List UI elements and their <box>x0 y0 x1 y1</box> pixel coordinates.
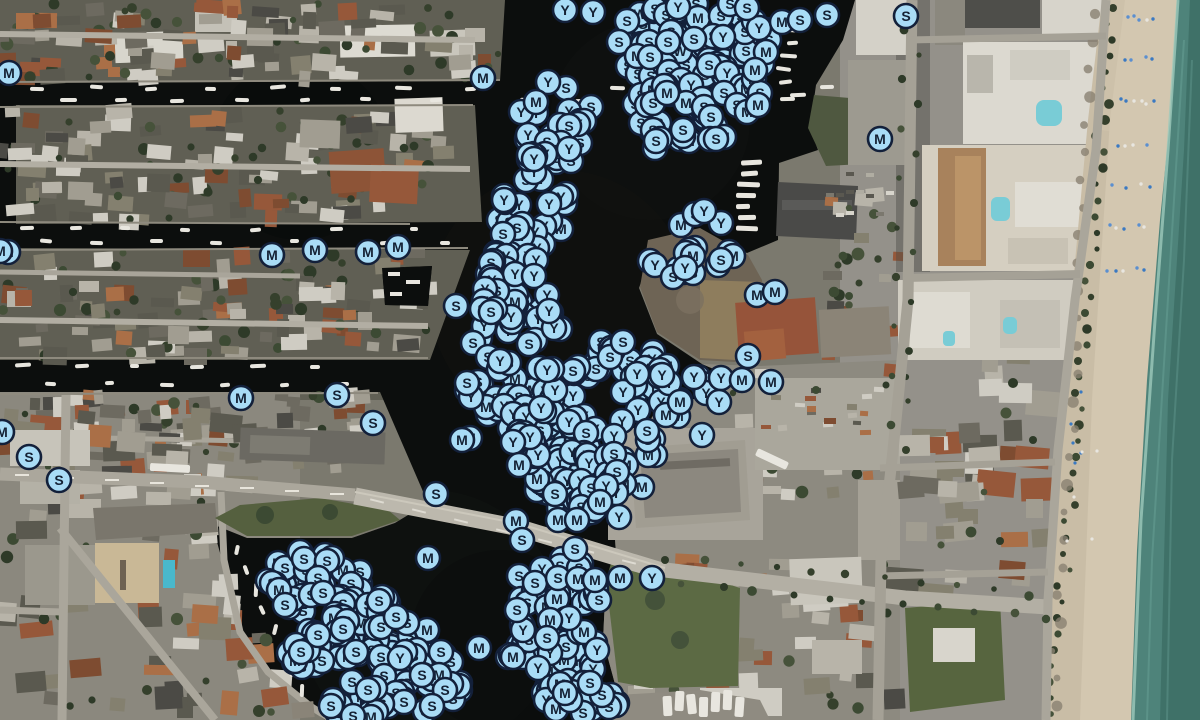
svg-text:M: M <box>571 512 583 528</box>
svg-text:S: S <box>901 8 910 24</box>
svg-text:Y: Y <box>523 127 533 143</box>
svg-text:S: S <box>417 667 426 683</box>
svg-text:M: M <box>776 14 788 30</box>
svg-text:S: S <box>363 682 372 698</box>
svg-text:Y: Y <box>564 414 574 430</box>
svg-text:M: M <box>235 390 247 406</box>
svg-text:Y: Y <box>536 400 546 416</box>
svg-text:Y: Y <box>525 429 535 445</box>
svg-text:M: M <box>365 709 377 720</box>
svg-text:S: S <box>822 7 831 23</box>
svg-text:S: S <box>742 0 751 16</box>
svg-text:S: S <box>743 348 752 364</box>
svg-text:S: S <box>614 34 623 50</box>
svg-text:S: S <box>678 122 687 138</box>
svg-text:S: S <box>542 630 551 646</box>
svg-text:Y: Y <box>714 394 724 410</box>
svg-text:M: M <box>530 94 542 110</box>
svg-text:M: M <box>765 374 777 390</box>
svg-text:M: M <box>752 97 764 113</box>
svg-text:Y: Y <box>722 65 732 81</box>
svg-text:S: S <box>431 486 440 502</box>
svg-text:Y: Y <box>544 196 554 212</box>
svg-text:M: M <box>477 70 489 86</box>
svg-text:S: S <box>427 698 436 714</box>
svg-text:S: S <box>24 449 33 465</box>
svg-text:M: M <box>661 85 673 101</box>
svg-text:M: M <box>589 572 601 588</box>
svg-text:Y: Y <box>754 20 764 36</box>
svg-text:S: S <box>332 387 341 403</box>
svg-text:M: M <box>473 640 485 656</box>
svg-text:S: S <box>451 298 460 314</box>
svg-text:Y: Y <box>697 427 707 443</box>
svg-text:Y: Y <box>588 4 598 20</box>
svg-text:Y: Y <box>542 362 552 378</box>
svg-text:Y: Y <box>673 0 683 15</box>
svg-text:S: S <box>570 541 579 557</box>
svg-text:S: S <box>524 336 533 352</box>
svg-text:S: S <box>351 644 360 660</box>
svg-text:M: M <box>551 591 563 607</box>
svg-text:Y: Y <box>689 369 699 385</box>
svg-text:Y: Y <box>564 141 574 157</box>
svg-text:Y: Y <box>564 610 574 626</box>
svg-text:Y: Y <box>395 650 405 666</box>
svg-text:M: M <box>0 424 8 440</box>
svg-text:M: M <box>636 479 648 495</box>
svg-text:M: M <box>3 65 15 81</box>
svg-text:S: S <box>530 575 539 591</box>
svg-text:M: M <box>507 649 519 665</box>
svg-text:Y: Y <box>533 660 543 676</box>
svg-text:M: M <box>422 550 434 566</box>
svg-text:S: S <box>561 80 570 96</box>
svg-text:Y: Y <box>614 509 624 525</box>
svg-text:S: S <box>605 349 614 365</box>
svg-text:Y: Y <box>632 366 642 382</box>
svg-text:M: M <box>392 239 404 255</box>
svg-text:S: S <box>338 621 347 637</box>
svg-text:S: S <box>663 34 672 50</box>
svg-text:M: M <box>874 131 886 147</box>
svg-text:S: S <box>725 0 734 12</box>
svg-text:S: S <box>645 49 654 65</box>
svg-text:M: M <box>456 432 468 448</box>
svg-text:Y: Y <box>592 642 602 658</box>
svg-text:S: S <box>622 13 631 29</box>
svg-text:Y: Y <box>560 2 570 18</box>
svg-text:S: S <box>716 252 725 268</box>
svg-text:S: S <box>512 602 521 618</box>
svg-text:S: S <box>618 334 627 350</box>
svg-text:M: M <box>0 243 6 259</box>
svg-text:S: S <box>795 12 804 28</box>
svg-text:S: S <box>54 472 63 488</box>
svg-text:M: M <box>421 622 433 638</box>
svg-text:S: S <box>689 31 698 47</box>
svg-text:M: M <box>309 242 321 258</box>
svg-text:M: M <box>736 372 748 388</box>
svg-text:S: S <box>436 644 445 660</box>
svg-text:Y: Y <box>543 74 553 90</box>
svg-text:S: S <box>299 551 308 567</box>
svg-text:Y: Y <box>499 192 509 208</box>
svg-text:Y: Y <box>647 570 657 586</box>
svg-text:Y: Y <box>544 303 554 319</box>
svg-text:Y: Y <box>529 151 539 167</box>
svg-text:M: M <box>362 244 374 260</box>
svg-text:M: M <box>769 284 781 300</box>
svg-text:S: S <box>440 682 449 698</box>
svg-text:S: S <box>376 649 385 665</box>
svg-text:Y: Y <box>633 402 643 418</box>
svg-text:Y: Y <box>533 447 543 463</box>
svg-text:S: S <box>486 304 495 320</box>
svg-text:Y: Y <box>699 203 709 219</box>
svg-text:Y: Y <box>518 622 528 638</box>
svg-text:Y: Y <box>529 268 539 284</box>
svg-text:M: M <box>594 494 606 510</box>
svg-text:S: S <box>462 375 471 391</box>
svg-text:M: M <box>674 394 686 410</box>
svg-text:Y: Y <box>716 215 726 231</box>
svg-text:M: M <box>266 247 278 263</box>
svg-text:S: S <box>704 57 713 73</box>
svg-text:S: S <box>594 592 603 608</box>
svg-text:M: M <box>751 287 763 303</box>
svg-text:S: S <box>399 694 408 710</box>
svg-text:M: M <box>552 512 564 528</box>
svg-text:S: S <box>348 708 357 720</box>
svg-text:M: M <box>692 10 704 26</box>
svg-text:Y: Y <box>680 260 690 276</box>
svg-text:S: S <box>368 415 377 431</box>
svg-text:S: S <box>568 363 577 379</box>
svg-text:Y: Y <box>718 29 728 45</box>
svg-text:S: S <box>651 133 660 149</box>
svg-text:M: M <box>559 685 571 701</box>
svg-text:Y: Y <box>657 367 667 383</box>
svg-text:M: M <box>760 44 772 60</box>
svg-text:S: S <box>318 585 327 601</box>
svg-text:M: M <box>510 513 522 529</box>
svg-text:S: S <box>468 335 477 351</box>
svg-text:S: S <box>741 43 750 59</box>
svg-text:S: S <box>313 627 322 643</box>
svg-text:S: S <box>374 593 383 609</box>
svg-text:S: S <box>391 609 400 625</box>
svg-text:S: S <box>585 675 594 691</box>
svg-text:Y: Y <box>510 266 520 282</box>
svg-text:S: S <box>326 698 335 714</box>
svg-text:Y: Y <box>584 455 594 471</box>
svg-text:S: S <box>706 109 715 125</box>
svg-text:S: S <box>296 644 305 660</box>
svg-text:M: M <box>614 570 626 586</box>
svg-text:M: M <box>513 457 525 473</box>
svg-text:Y: Y <box>650 257 660 273</box>
svg-text:Y: Y <box>550 382 560 398</box>
svg-text:S: S <box>553 570 562 586</box>
svg-text:Y: Y <box>495 353 505 369</box>
svg-text:S: S <box>280 597 289 613</box>
svg-text:Y: Y <box>618 384 628 400</box>
svg-text:S: S <box>711 131 720 147</box>
svg-text:S: S <box>517 532 526 548</box>
svg-text:S: S <box>642 423 651 439</box>
svg-text:S: S <box>498 226 507 242</box>
svg-text:Y: Y <box>716 370 726 386</box>
svg-text:M: M <box>749 62 761 78</box>
svg-text:M: M <box>680 95 692 111</box>
svg-text:Y: Y <box>508 434 518 450</box>
svg-text:S: S <box>581 425 590 441</box>
svg-text:Y: Y <box>568 388 578 404</box>
svg-text:M: M <box>578 624 590 640</box>
svg-text:S: S <box>550 486 559 502</box>
